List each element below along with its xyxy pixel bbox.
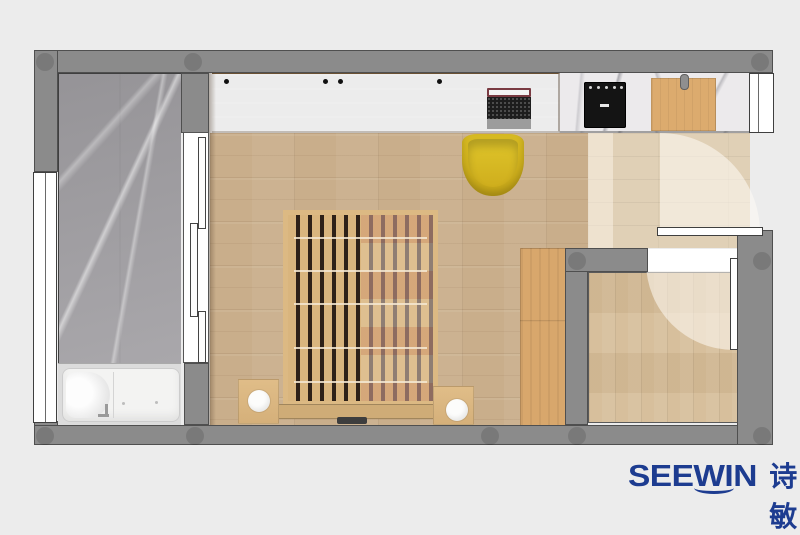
tub-jet [155,401,158,404]
sliding-door-panel [190,223,198,317]
wall-column [568,252,586,270]
doorway-opening [648,249,737,271]
wall-bottom [34,425,773,445]
laptop-lid [487,88,531,97]
cooktop [584,82,626,128]
wall-column [36,53,54,71]
bathroom-window [33,172,57,423]
desk-screw [437,79,442,84]
laptop-palmrest [487,119,531,129]
floor-vent [337,417,367,424]
wall-column [751,53,769,71]
floor-transition-strip [588,133,613,248]
small-room-door-leaf [730,258,738,350]
wall-door-pocket-top [181,73,209,133]
brand-logo-swoosh [694,482,734,494]
bathtub [62,368,180,422]
entry-door-leaf [657,227,763,236]
desk-screw [323,79,328,84]
slat-break-line [294,347,427,349]
table-lamp-left [248,390,270,412]
brand-logo-latin: SEEWIN [628,458,757,494]
brand-logo-cjk: 诗敏 [769,455,800,535]
desk-screw [338,79,343,84]
table-lamp-right [446,399,468,421]
cooktop-knob [589,86,592,89]
cooktop-knob [605,86,608,89]
bathtub-divider [113,372,114,418]
board-handle [680,74,689,90]
desk-screw [224,79,229,84]
laptop-keyboard [487,97,531,119]
wall-column [568,427,586,445]
sliding-door-panel [198,137,206,229]
wall-column [481,427,499,445]
wall-column [186,427,204,445]
slat-break-line [294,270,427,272]
cooktop-display [600,104,609,107]
cooktop-knob [597,86,600,89]
kitchen-window [749,73,774,133]
slatted-bed [283,210,438,406]
laptop-screen [489,90,529,95]
wall-top [34,50,773,73]
bathroom-floor [58,73,181,363]
cabinet [520,248,565,425]
wall-column [753,252,771,270]
slat-break-line [294,381,427,383]
wall-mid-vertical [565,248,588,425]
wall-column [753,427,771,445]
sliding-door [183,132,209,363]
tub-jet [122,402,125,405]
brand-logo: SEEWIN 诗敏 [628,455,800,535]
desk-edge-shadow [209,73,216,425]
bathtub-seat [66,372,110,418]
cooktop-knob [620,86,623,89]
bathtub-faucet-handle [98,414,109,417]
slat-section-right [361,215,434,401]
window-mullion [758,74,759,132]
wall-column [184,53,202,71]
floor-plan [0,0,800,507]
wall-column [36,427,54,445]
sliding-door-panel [198,311,206,363]
wall-door-pocket-bottom [184,363,209,425]
window-mullion [45,173,46,422]
slat-break-line [294,303,427,305]
slat-break-line [294,237,427,239]
slat-section-left [288,215,361,401]
chair-seat [468,139,518,187]
cooktop-knob [613,86,616,89]
